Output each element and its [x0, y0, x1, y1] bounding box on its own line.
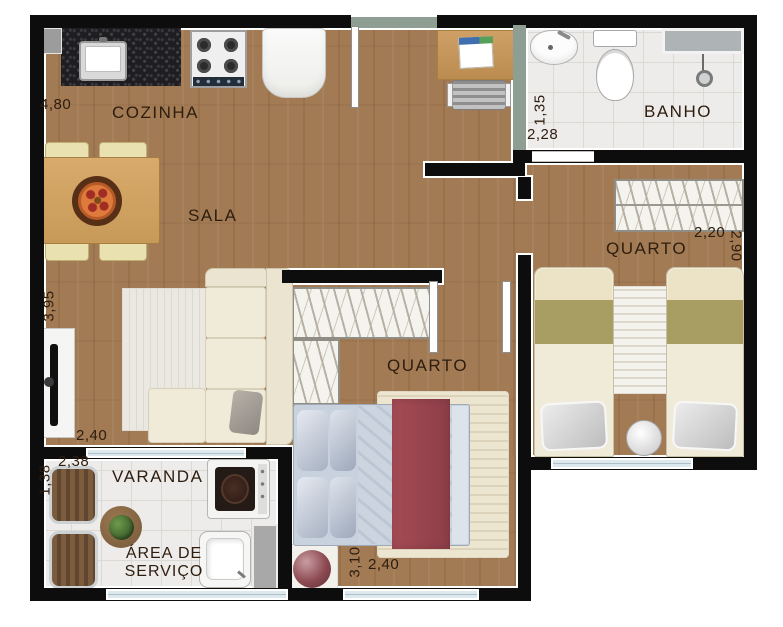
- wardrobe-divider: [616, 204, 742, 206]
- service-pillar: [252, 524, 278, 592]
- dimension-label: 2,20: [694, 224, 725, 241]
- toilet-bowl: [596, 49, 634, 101]
- desk-chair-armrest: [447, 83, 453, 107]
- wall-bathroom: [513, 25, 526, 156]
- desk-chair: [452, 80, 506, 110]
- dimension-label: 2,40: [368, 556, 399, 573]
- sofa-armrest: [205, 268, 267, 287]
- room-label-quarto1: QUARTO: [387, 356, 468, 376]
- stove-burner: [224, 38, 238, 52]
- room-label-cozinha: COZINHA: [112, 103, 199, 123]
- wardrobe-bedroom1: [292, 287, 432, 339]
- window-balcony: [106, 589, 288, 600]
- room-label-banho: BANHO: [644, 102, 712, 122]
- balcony-chair: [49, 531, 98, 589]
- twin-bed-duvet-fold: [668, 269, 742, 300]
- wall: [30, 15, 351, 28]
- window-bedroom2: [551, 458, 693, 469]
- washing-machine-drum-circle: [221, 474, 249, 504]
- dimension-label: 2,28: [527, 126, 558, 143]
- sliding-door-balcony: [86, 448, 246, 458]
- bedroom2-rug: [612, 286, 668, 394]
- dining-chair: [45, 241, 89, 261]
- twin-bed-blanket: [667, 300, 743, 344]
- dimension-label: 2,38: [58, 453, 89, 470]
- dimension-label: 1,35: [532, 94, 549, 125]
- dimension-label: 3,10: [347, 546, 364, 577]
- bathroom-sink-drain: [548, 45, 553, 50]
- bed-pillow: [330, 410, 356, 471]
- bathroom-sink: [530, 30, 578, 65]
- wall: [278, 447, 292, 601]
- fridge: [262, 28, 326, 98]
- washing-machine-panel: [258, 464, 267, 514]
- sofa-pillow: [228, 389, 263, 435]
- plant-icon: [109, 515, 134, 540]
- wall: [744, 15, 757, 470]
- wall: [518, 177, 531, 199]
- dimension-label: 2,90: [728, 230, 745, 261]
- stove-burner: [197, 38, 211, 52]
- room-label-quarto2: QUARTO: [606, 239, 687, 259]
- bed-pillow: [297, 410, 328, 471]
- dimension-label: 2,40: [76, 427, 107, 444]
- bedside-table: [626, 420, 662, 456]
- dimension-label: 4,80: [40, 96, 71, 113]
- wall: [518, 255, 531, 601]
- twin-bed-pillow: [540, 400, 608, 451]
- shower-tray: [662, 28, 744, 54]
- pouf: [293, 550, 331, 588]
- stove-burner: [224, 59, 238, 73]
- pizza: [78, 182, 116, 220]
- twin-bed-blanket: [535, 300, 613, 344]
- wall: [425, 163, 525, 176]
- room-label-sala: SALA: [188, 206, 237, 226]
- tv-stand-icon: [44, 377, 54, 387]
- wall: [282, 270, 442, 283]
- toilet-tank: [593, 30, 637, 47]
- bed-pillow: [330, 477, 356, 538]
- door-opening-bathroom: [532, 151, 594, 162]
- shower-head-icon: [696, 70, 713, 87]
- twin-bed-duvet-fold: [536, 269, 612, 300]
- door-leaf-bedroom2: [502, 281, 511, 353]
- bed-pillow: [297, 477, 328, 538]
- room-label-area-servico: ÁREA DE SERVIÇO: [116, 545, 212, 582]
- twin-bed-pillow: [672, 400, 738, 451]
- wardrobe-bedroom1-return: [292, 339, 340, 405]
- dining-chair: [99, 241, 147, 261]
- kitchen-sink-basin: [85, 46, 121, 72]
- sofa-chaise: [148, 388, 206, 443]
- door-leaf-bedroom1: [429, 281, 438, 353]
- wall: [437, 15, 757, 28]
- bed-foot-edge: [452, 406, 468, 544]
- sofa-cushion: [205, 338, 266, 389]
- stove-burner: [197, 59, 211, 73]
- sofa-back: [266, 268, 293, 445]
- wall-entry: [351, 17, 437, 28]
- balcony-chair: [49, 466, 98, 524]
- dimension-label: 3,95: [41, 290, 58, 321]
- bed-runner-red: [392, 399, 450, 549]
- desk-chair-armrest: [505, 83, 511, 107]
- door-leaf-entry: [351, 26, 359, 108]
- sofa-cushion: [205, 287, 266, 338]
- floor-plan: COZINHA SALA BANHO QUARTO QUARTO VARANDA…: [0, 0, 783, 627]
- dimension-label: 1,38: [37, 464, 54, 495]
- kitchen-faucet-icon: [99, 37, 107, 42]
- window-bedroom1: [343, 589, 479, 600]
- stove-knob-panel: [193, 77, 244, 86]
- room-label-varanda: VARANDA: [112, 467, 203, 487]
